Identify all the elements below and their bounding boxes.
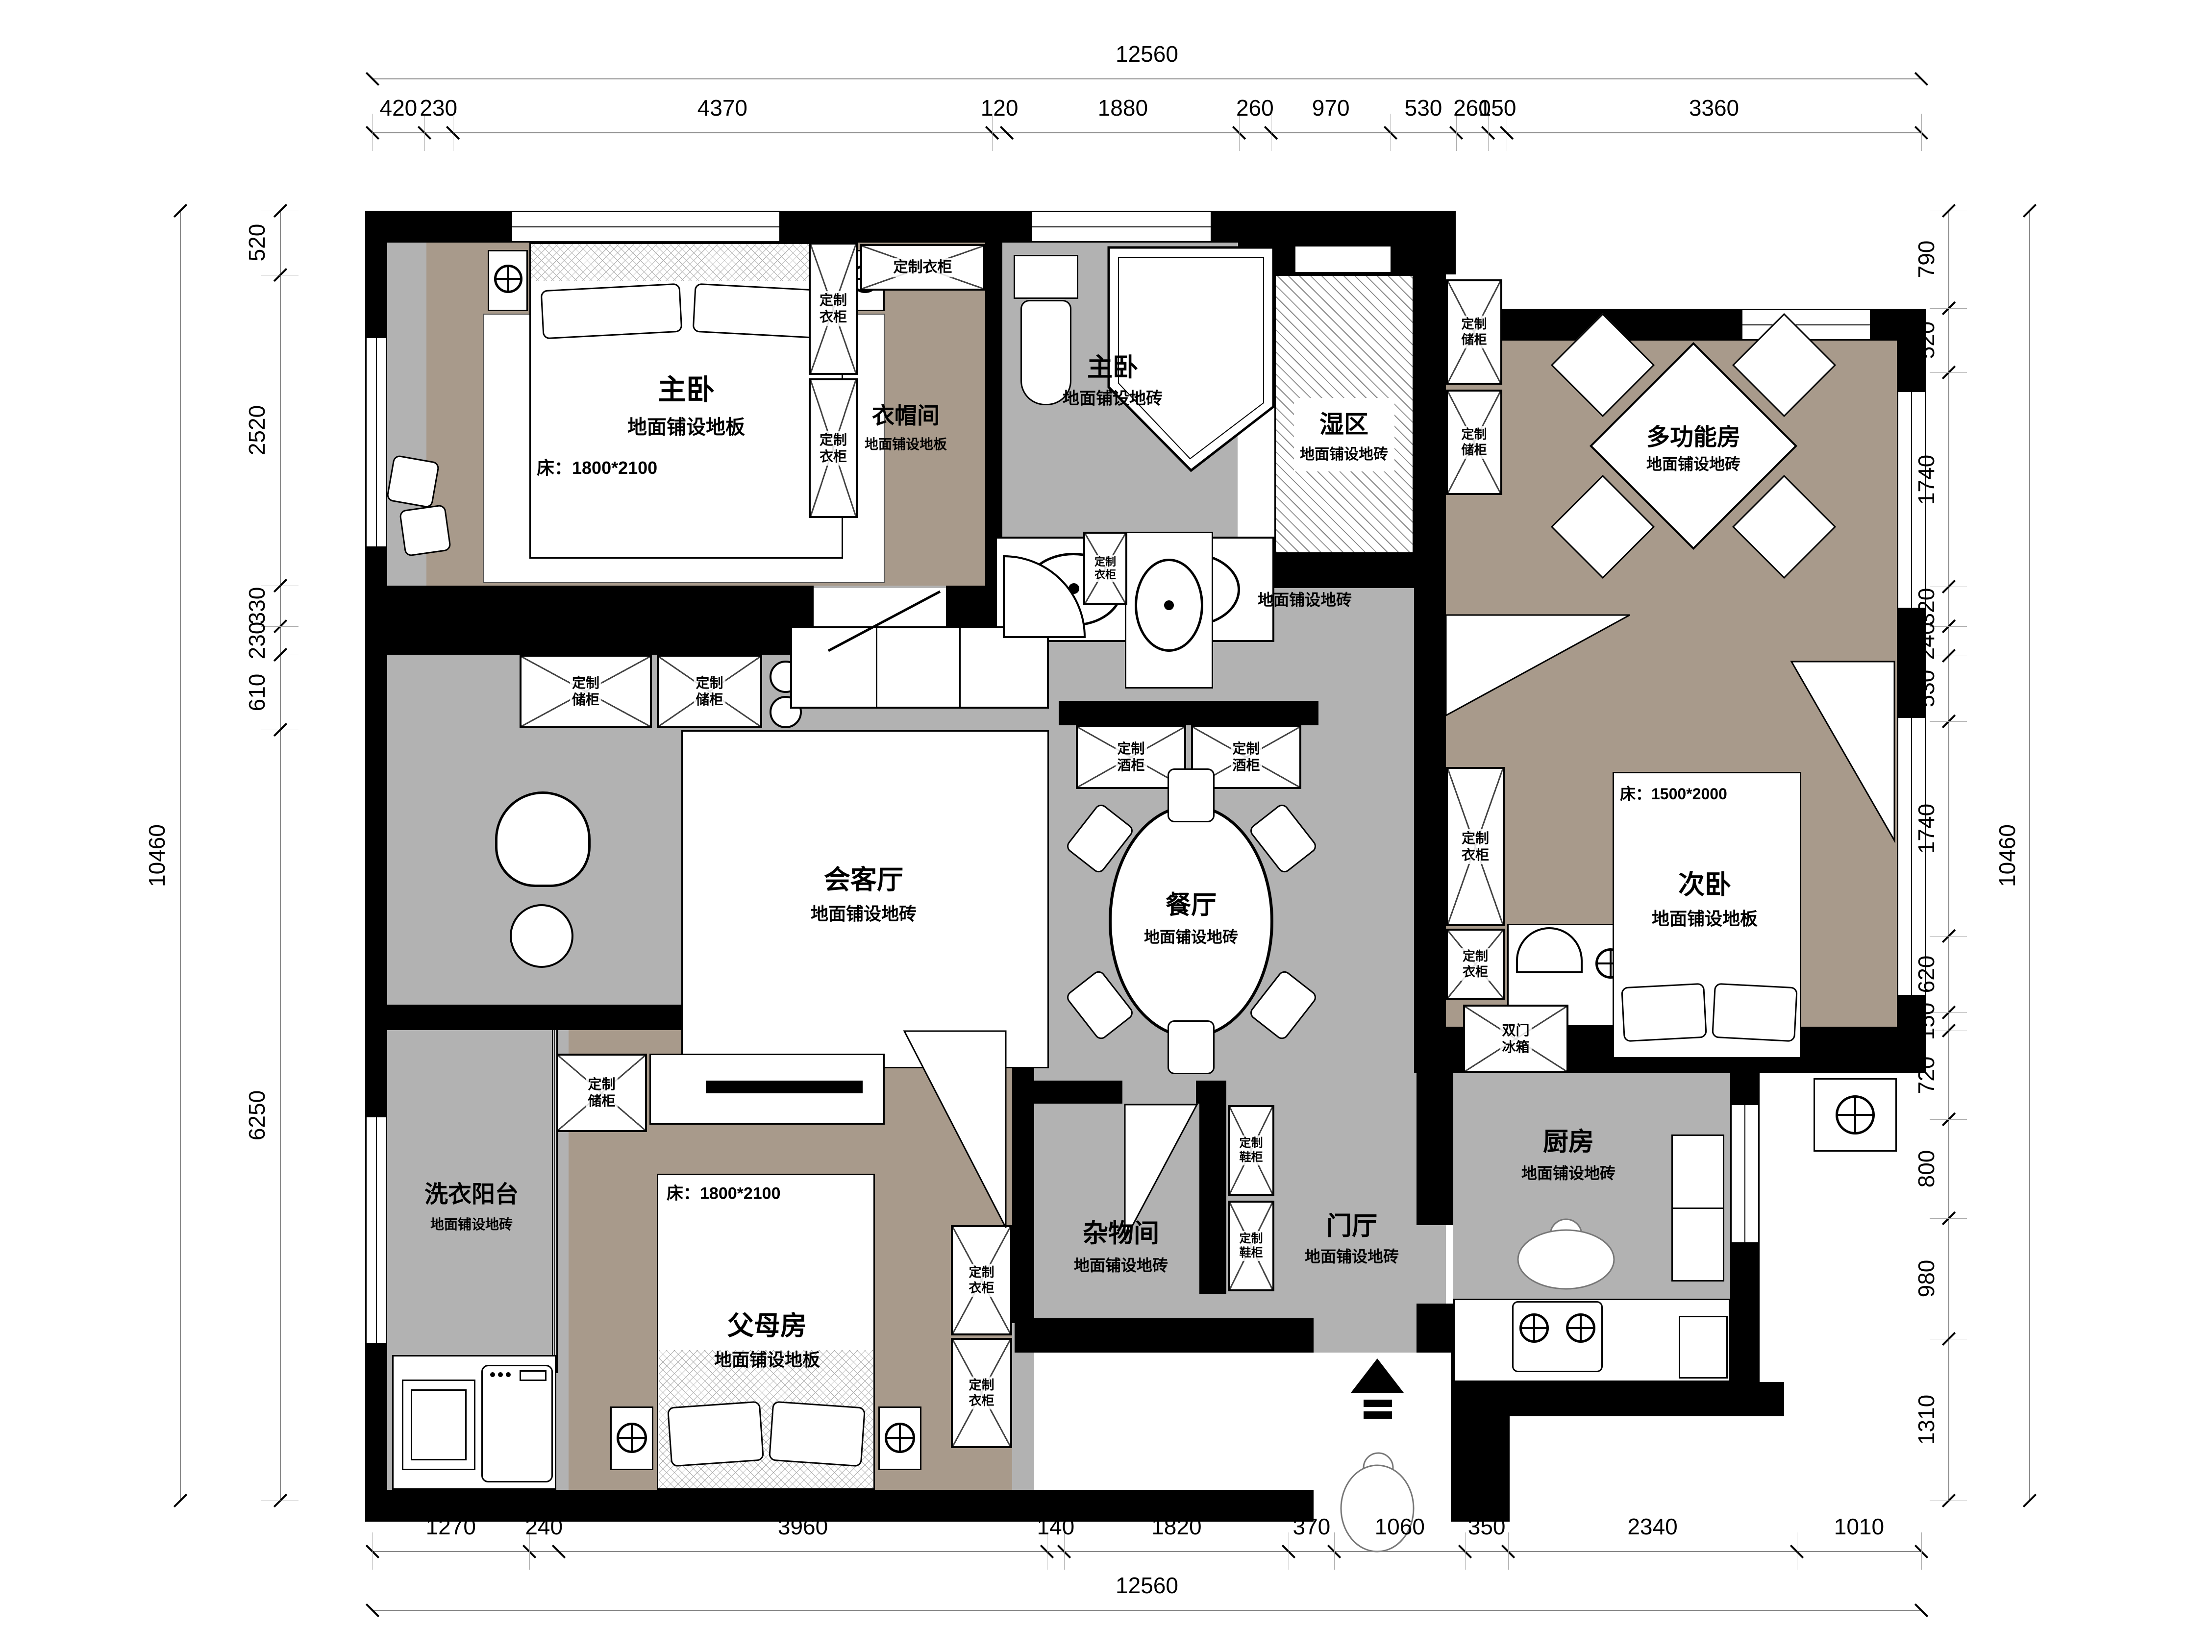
- dimension-line: [2029, 211, 2030, 1501]
- dimension-line: [373, 132, 1921, 133]
- dimension-value: 520: [244, 224, 270, 262]
- dimension-value: 790: [1913, 241, 1939, 278]
- dimension-value: 240: [1913, 622, 1939, 660]
- dimension-extension: [1930, 587, 1967, 587]
- dimension-extension: [261, 211, 298, 211]
- dimension-value: 530: [1913, 670, 1939, 708]
- dimension-line: [280, 211, 281, 1501]
- dimension-value: 1880: [1098, 95, 1148, 121]
- dimension-value: 260: [1236, 95, 1274, 121]
- dimension-value: 150: [1913, 1003, 1939, 1040]
- dimension-line: [373, 78, 1921, 79]
- dimension-value: 150: [1479, 95, 1516, 121]
- dimension-value: 230: [420, 95, 457, 121]
- dimension-extension: [1930, 308, 1967, 309]
- dimension-value: 10460: [144, 824, 170, 887]
- dimension-extension: [261, 730, 298, 730]
- dimension-value: 3360: [1689, 95, 1739, 121]
- dimension-value: 240: [525, 1513, 563, 1540]
- dimension-extension: [1930, 372, 1967, 373]
- dimension-extension: [1930, 1501, 1967, 1501]
- dimension-annotations: 4202304370120188026097053026015033601256…: [0, 0, 2212, 1652]
- dimension-extension: [1508, 1532, 1509, 1570]
- dimension-extension: [1930, 1119, 1967, 1120]
- dimension-extension: [373, 114, 373, 151]
- dimension-value: 10460: [1994, 824, 2020, 887]
- dimension-line: [180, 211, 181, 1501]
- dimension-value: 1820: [1151, 1513, 1201, 1540]
- dimension-extension: [1930, 211, 1967, 211]
- dimension-extension: [261, 275, 298, 275]
- dimension-value: 2520: [244, 405, 270, 455]
- dimension-line: [373, 1610, 1921, 1611]
- dimension-value: 1310: [1913, 1395, 1939, 1445]
- dimension-value: 12560: [1116, 41, 1178, 67]
- dimension-extension: [1391, 114, 1391, 151]
- floor-plan: 定制衣柜 定制衣柜 定制衣柜 定制储柜 定制储柜 定制衣柜 定制酒柜 定制酒柜 …: [0, 0, 2212, 1652]
- dimension-value: 12560: [1116, 1572, 1178, 1599]
- dimension-extension: [1930, 721, 1967, 722]
- dimension-value: 4370: [697, 95, 747, 121]
- dimension-value: 420: [380, 95, 418, 121]
- dimension-value: 1270: [426, 1513, 476, 1540]
- dimension-value: 720: [1913, 1057, 1939, 1094]
- dimension-value: 980: [1913, 1260, 1939, 1298]
- dimension-value: 3960: [778, 1513, 828, 1540]
- dimension-value: 230: [244, 622, 270, 660]
- dimension-extension: [1289, 1532, 1289, 1570]
- dimension-value: 800: [1913, 1150, 1939, 1188]
- dimension-value: 1740: [1913, 454, 1939, 504]
- dimension-value: 520: [1913, 321, 1939, 359]
- dimension-value: 620: [1913, 955, 1939, 993]
- dimension-line: [1948, 211, 1949, 1501]
- dimension-extension: [1930, 1218, 1967, 1219]
- dimension-value: 140: [1037, 1513, 1074, 1540]
- dimension-value: 530: [1405, 95, 1442, 121]
- dimension-extension: [373, 1532, 373, 1570]
- dimension-extension: [1334, 1532, 1335, 1570]
- dimension-value: 320: [1913, 588, 1939, 625]
- dimension-value: 610: [244, 673, 270, 711]
- dimension-line: [373, 1551, 1921, 1552]
- dimension-value: 6250: [244, 1090, 270, 1140]
- dimension-value: 350: [1468, 1513, 1506, 1540]
- dimension-extension: [261, 586, 298, 586]
- dimension-value: 2340: [1627, 1513, 1677, 1540]
- dimension-extension: [1930, 1339, 1967, 1339]
- dimension-extension: [1797, 1532, 1797, 1570]
- dimension-extension: [1921, 114, 1922, 151]
- dimension-extension: [261, 1501, 298, 1501]
- dimension-value: 120: [981, 95, 1019, 121]
- dimension-value: 1060: [1375, 1513, 1425, 1540]
- dimension-value: 1740: [1913, 803, 1939, 853]
- dimension-value: 970: [1312, 95, 1350, 121]
- dimension-value: 330: [244, 587, 270, 625]
- dimension-value: 1010: [1834, 1513, 1884, 1540]
- dimension-extension: [1921, 1532, 1922, 1570]
- dimension-extension: [1465, 1532, 1466, 1570]
- dimension-extension: [1930, 936, 1967, 937]
- dimension-value: 370: [1293, 1513, 1331, 1540]
